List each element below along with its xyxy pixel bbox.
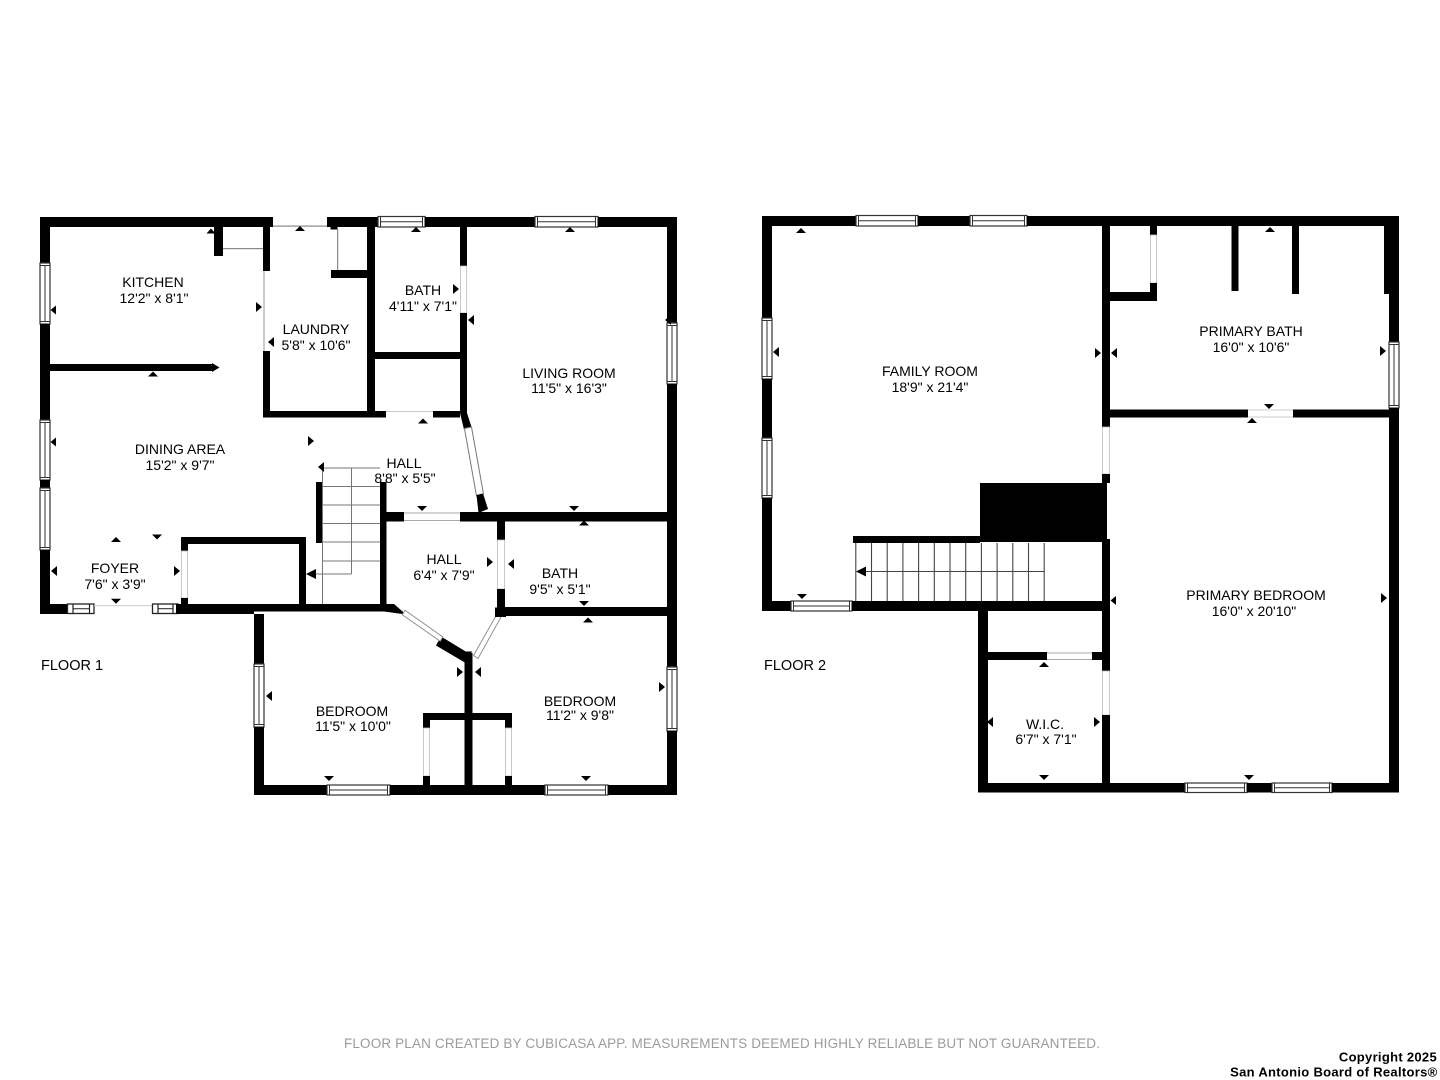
svg-text:15'2" x 9'7": 15'2" x 9'7" bbox=[146, 457, 215, 473]
svg-text:11'5" x 16'3": 11'5" x 16'3" bbox=[531, 380, 607, 396]
svg-text:16'0" x 10'6": 16'0" x 10'6" bbox=[1213, 339, 1290, 355]
svg-text:FOYER: FOYER bbox=[91, 560, 139, 576]
svg-text:Copyright 2025: Copyright 2025 bbox=[1339, 1050, 1437, 1065]
svg-text:W.I.C.: W.I.C. bbox=[1026, 716, 1064, 732]
svg-text:5'8" x 10'6": 5'8" x 10'6" bbox=[282, 337, 351, 353]
svg-text:FAMILY ROOM: FAMILY ROOM bbox=[882, 363, 978, 379]
svg-text:DINING AREA: DINING AREA bbox=[135, 441, 226, 457]
svg-text:4'11" x 7'1": 4'11" x 7'1" bbox=[389, 298, 457, 314]
svg-text:HALL: HALL bbox=[426, 551, 461, 567]
svg-text:11'2" x 9'8": 11'2" x 9'8" bbox=[546, 707, 614, 723]
svg-text:11'5" x 10'0": 11'5" x 10'0" bbox=[315, 718, 391, 734]
svg-text:PRIMARY BEDROOM: PRIMARY BEDROOM bbox=[1186, 587, 1326, 603]
svg-text:FLOOR PLAN CREATED BY CUBICASA: FLOOR PLAN CREATED BY CUBICASA APP. MEAS… bbox=[344, 1036, 1100, 1051]
svg-text:18'9" x 21'4": 18'9" x 21'4" bbox=[892, 379, 969, 395]
svg-text:LAUNDRY: LAUNDRY bbox=[283, 321, 350, 337]
svg-text:BATH: BATH bbox=[542, 565, 578, 581]
svg-text:7'6" x 3'9": 7'6" x 3'9" bbox=[84, 576, 145, 592]
svg-text:KITCHEN: KITCHEN bbox=[122, 274, 183, 290]
svg-text:8'8" x 5'5": 8'8" x 5'5" bbox=[374, 470, 435, 486]
svg-text:BEDROOM: BEDROOM bbox=[316, 703, 388, 719]
svg-text:San Antonio Board of Realtors®: San Antonio Board of Realtors® bbox=[1230, 1064, 1437, 1079]
svg-text:FLOOR 1: FLOOR 1 bbox=[41, 658, 103, 674]
svg-text:6'7" x 7'1": 6'7" x 7'1" bbox=[1015, 731, 1076, 747]
svg-text:HALL: HALL bbox=[386, 455, 421, 471]
svg-text:16'0" x 20'10": 16'0" x 20'10" bbox=[1212, 603, 1297, 619]
svg-text:BATH: BATH bbox=[405, 282, 441, 298]
svg-text:PRIMARY BATH: PRIMARY BATH bbox=[1199, 323, 1302, 339]
svg-text:6'4" x 7'9": 6'4" x 7'9" bbox=[413, 567, 474, 583]
svg-text:12'2" x 8'1": 12'2" x 8'1" bbox=[120, 290, 189, 306]
svg-text:9'5" x 5'1": 9'5" x 5'1" bbox=[529, 581, 590, 597]
svg-text:LIVING ROOM: LIVING ROOM bbox=[522, 365, 615, 381]
svg-text:FLOOR 2: FLOOR 2 bbox=[764, 658, 826, 674]
